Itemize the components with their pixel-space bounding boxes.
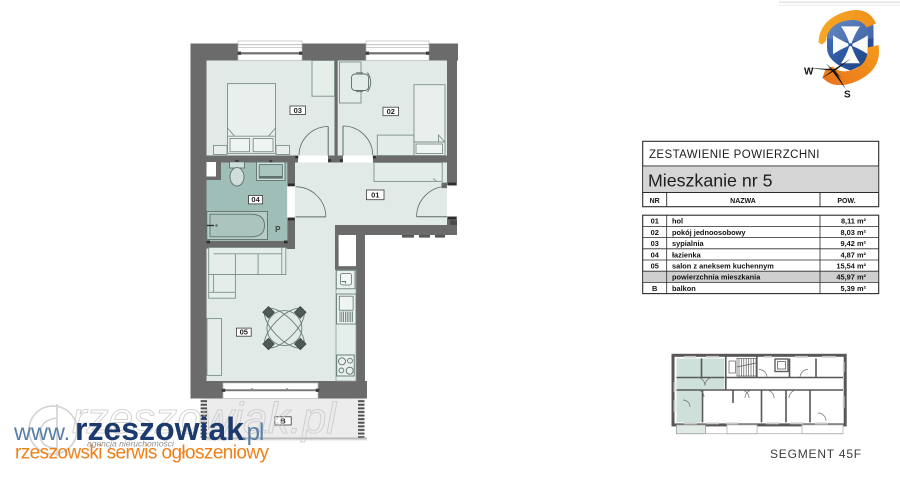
- svg-text:hol: hol: [672, 217, 683, 226]
- svg-text:45,97 m²: 45,97 m²: [836, 273, 866, 282]
- svg-text:POW.: POW.: [837, 198, 855, 205]
- svg-text:01: 01: [371, 191, 379, 200]
- svg-text:05: 05: [240, 328, 248, 337]
- svg-text:B: B: [652, 284, 657, 293]
- svg-text:W: W: [804, 67, 814, 78]
- svg-text:balkon: balkon: [672, 284, 696, 293]
- svg-text:04: 04: [251, 195, 260, 204]
- svg-text:8,11 m²: 8,11 m²: [841, 217, 867, 226]
- svg-text:pokój jednoosobowy: pokój jednoosobowy: [672, 228, 746, 237]
- svg-text:Mieszkanie nr 5: Mieszkanie nr 5: [648, 171, 773, 191]
- svg-text:02: 02: [651, 228, 659, 237]
- svg-text:9,42 m²: 9,42 m²: [841, 239, 867, 248]
- svg-text:powierzchnia mieszkania: powierzchnia mieszkania: [672, 273, 761, 282]
- svg-text:8,03 m²: 8,03 m²: [841, 228, 867, 237]
- svg-text:NR: NR: [650, 198, 660, 205]
- svg-text:rzeszowski serwis ogłoszeniowy: rzeszowski serwis ogłoszeniowy: [15, 443, 269, 464]
- svg-text:sypialnia: sypialnia: [672, 239, 705, 248]
- svg-text:03: 03: [294, 106, 302, 115]
- svg-text:05: 05: [651, 262, 659, 271]
- svg-text:03: 03: [651, 239, 659, 248]
- svg-text:łazienka: łazienka: [672, 250, 702, 259]
- svg-text:04: 04: [651, 250, 660, 259]
- svg-text:4,87 m²: 4,87 m²: [841, 250, 867, 259]
- svg-text:www.: www.: [13, 419, 70, 445]
- svg-text:02: 02: [387, 107, 395, 116]
- svg-text:SEGMENT 45F: SEGMENT 45F: [770, 447, 862, 461]
- svg-text:15,54 m²: 15,54 m²: [836, 262, 866, 271]
- svg-text:salon z aneksem kuchennym: salon z aneksem kuchennym: [672, 262, 774, 271]
- svg-text:NAZWA: NAZWA: [730, 198, 756, 205]
- svg-text:P: P: [275, 225, 281, 234]
- svg-text:5,39 m²: 5,39 m²: [841, 284, 867, 293]
- svg-text:ZESTAWIENIE POWIERZCHNI: ZESTAWIENIE POWIERZCHNI: [649, 149, 820, 161]
- svg-text:01: 01: [651, 217, 659, 226]
- svg-text:S: S: [844, 90, 851, 101]
